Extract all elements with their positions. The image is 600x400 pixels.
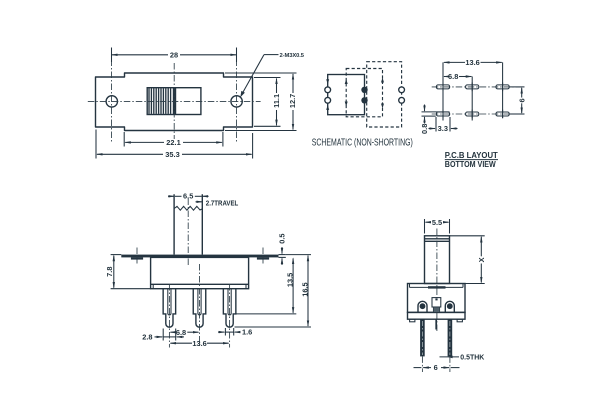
svg-text:5.5: 5.5 — [432, 218, 442, 227]
svg-text:13.6: 13.6 — [192, 339, 206, 348]
svg-text:35.3: 35.3 — [165, 150, 179, 159]
svg-text:P.C.B LAYOUT: P.C.B LAYOUT — [445, 151, 498, 160]
svg-text:SCHEMATIC (NON-SHORTING): SCHEMATIC (NON-SHORTING) — [312, 137, 413, 149]
svg-text:0.5THK: 0.5THK — [460, 352, 485, 361]
svg-text:X: X — [477, 257, 486, 262]
svg-text:16.5: 16.5 — [300, 282, 309, 296]
svg-text:7.8: 7.8 — [105, 267, 114, 277]
svg-text:6.8: 6.8 — [448, 72, 458, 81]
svg-text:6: 6 — [434, 363, 438, 372]
svg-text:6.8: 6.8 — [176, 328, 186, 337]
svg-text:13.5: 13.5 — [286, 273, 295, 287]
svg-text:22.1: 22.1 — [166, 138, 180, 147]
svg-text:2.7TRAVEL: 2.7TRAVEL — [206, 199, 239, 208]
svg-text:0.8: 0.8 — [420, 124, 429, 134]
svg-text:1.6: 1.6 — [242, 328, 252, 337]
svg-text:12.7: 12.7 — [288, 94, 297, 108]
svg-text:2.8: 2.8 — [142, 333, 152, 342]
svg-text:0.5: 0.5 — [277, 233, 286, 243]
svg-text:11.1: 11.1 — [272, 94, 281, 108]
svg-text:6.5: 6.5 — [183, 192, 193, 201]
svg-text:28: 28 — [170, 50, 178, 59]
svg-text:3.3: 3.3 — [438, 124, 448, 133]
svg-text:13.6: 13.6 — [465, 58, 479, 67]
svg-text:2-M3X0.5: 2-M3X0.5 — [280, 53, 305, 59]
svg-text:BOTTOM VIEW: BOTTOM VIEW — [445, 160, 496, 169]
svg-text:6: 6 — [517, 98, 526, 102]
